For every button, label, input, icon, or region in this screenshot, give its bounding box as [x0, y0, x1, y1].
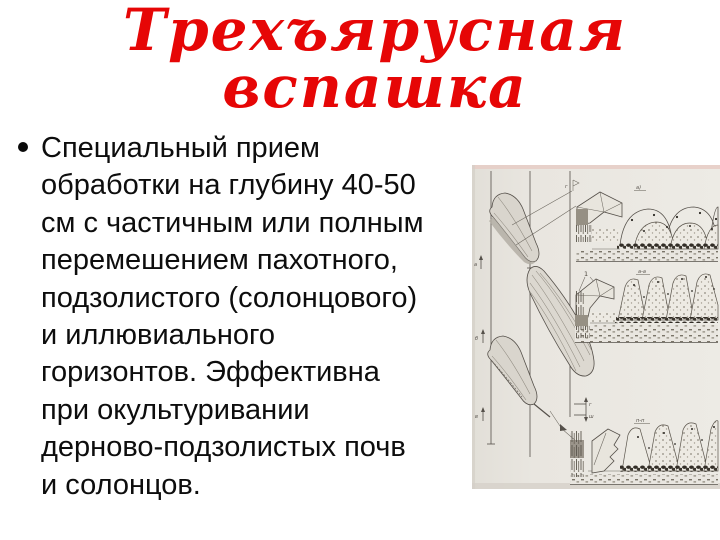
flag-label: г — [565, 184, 568, 190]
bullet-item: Специальный прием обработки на глубину 4… — [12, 130, 478, 504]
slide-canvas: Трехъярусная вспашка Специальный прием о… — [0, 0, 720, 540]
bullet-icon — [18, 142, 28, 152]
section-bottom-label: п-п — [636, 418, 645, 424]
tick1-label: а — [474, 262, 477, 268]
section-top-label: а) — [636, 185, 641, 191]
bracket-upper-label: г — [589, 402, 592, 408]
tick3-label: в — [475, 414, 478, 420]
pointer-label: 1 — [584, 270, 588, 278]
slide-title: Трехъярусная вспашка — [30, 2, 720, 116]
tick2-label: б — [475, 336, 478, 342]
three-tier-plowing-figure: г а б в г ш — [472, 165, 720, 489]
section-mid-label: а-а — [638, 269, 646, 275]
bracket-lower-label: ш — [589, 414, 594, 420]
bullet-text: Специальный прием обработки на глубину 4… — [41, 130, 424, 504]
